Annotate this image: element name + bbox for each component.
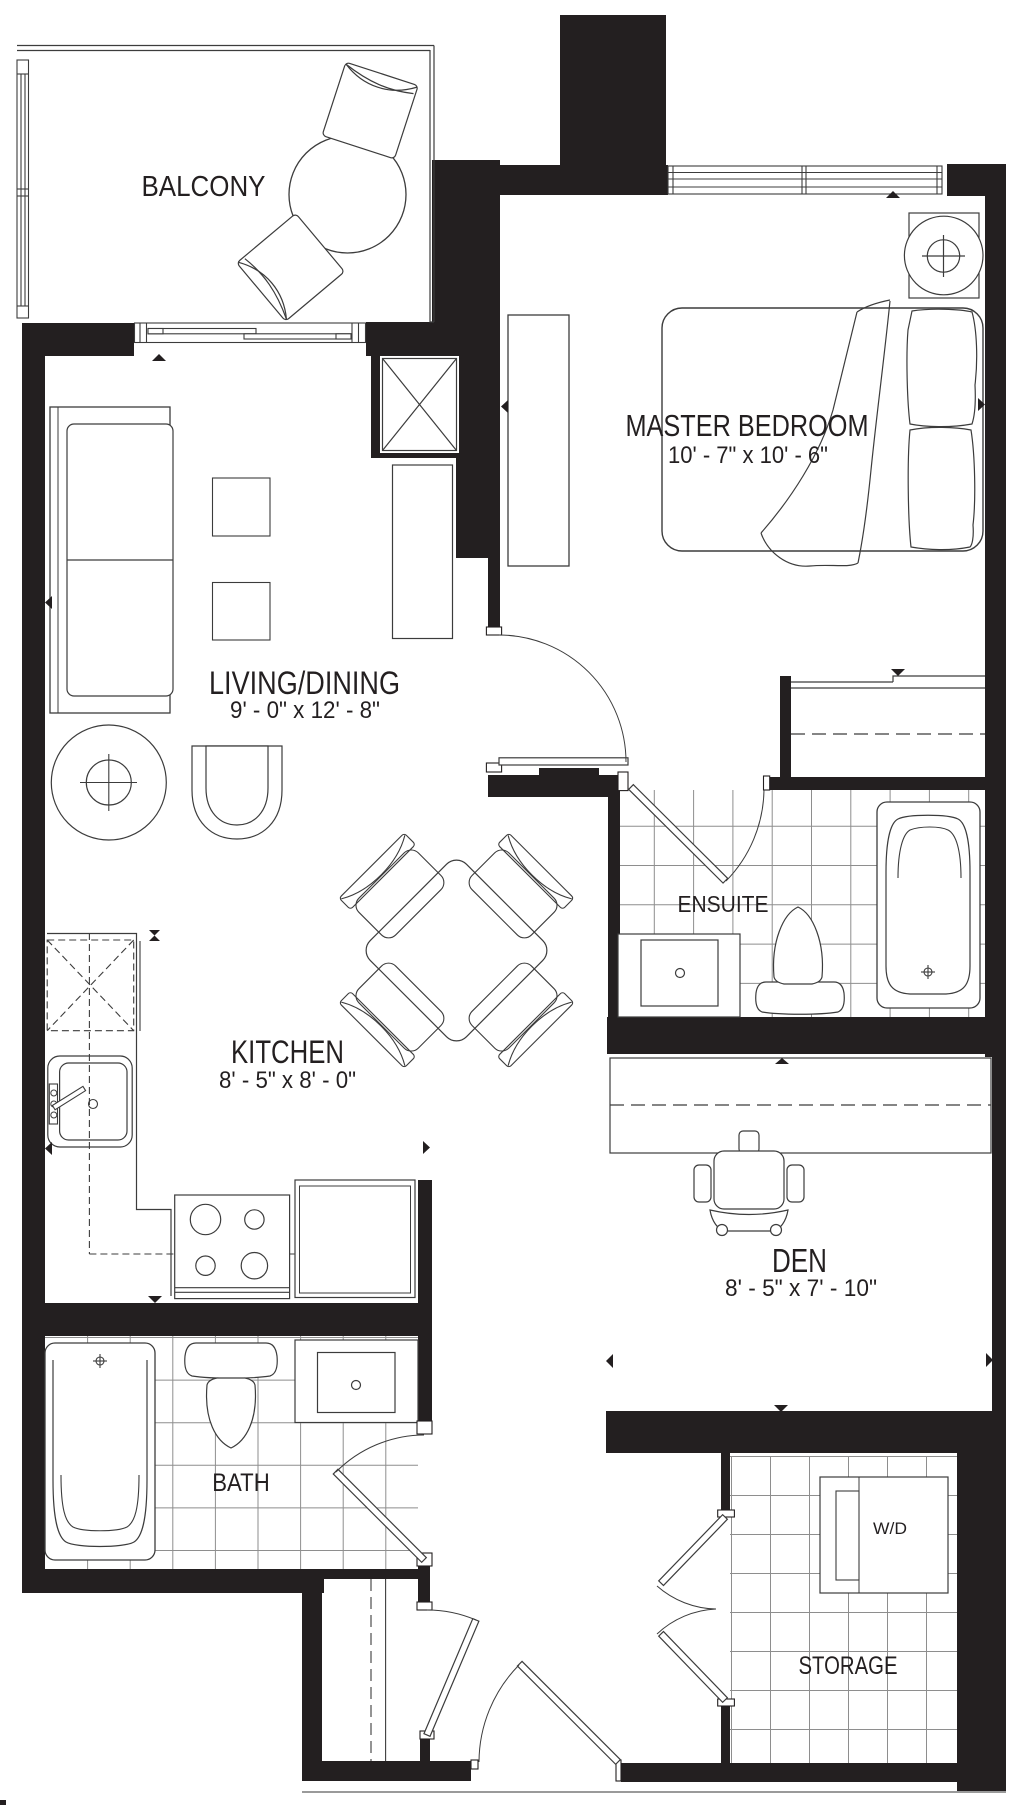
svg-text:ENSUITE: ENSUITE	[678, 891, 769, 917]
svg-text:9' - 0" x 12' - 8": 9' - 0" x 12' - 8"	[230, 697, 380, 724]
svg-text:DEN: DEN	[772, 1242, 827, 1279]
svg-text:10' - 7" x 10' - 6": 10' - 7" x 10' - 6"	[668, 442, 828, 469]
svg-text:W/D: W/D	[873, 1519, 907, 1538]
svg-text:8' - 5" x 7' - 10": 8' - 5" x 7' - 10"	[725, 1275, 877, 1302]
svg-text:BATH: BATH	[212, 1469, 270, 1497]
svg-text:LIVING/DINING: LIVING/DINING	[209, 665, 400, 701]
svg-text:STORAGE: STORAGE	[799, 1652, 898, 1680]
svg-text:KITCHEN: KITCHEN	[231, 1034, 344, 1070]
svg-text:BALCONY: BALCONY	[142, 171, 266, 203]
svg-text:MASTER BEDROOM: MASTER BEDROOM	[626, 408, 869, 443]
svg-text:8' - 5" x 8' - 0": 8' - 5" x 8' - 0"	[219, 1067, 356, 1094]
